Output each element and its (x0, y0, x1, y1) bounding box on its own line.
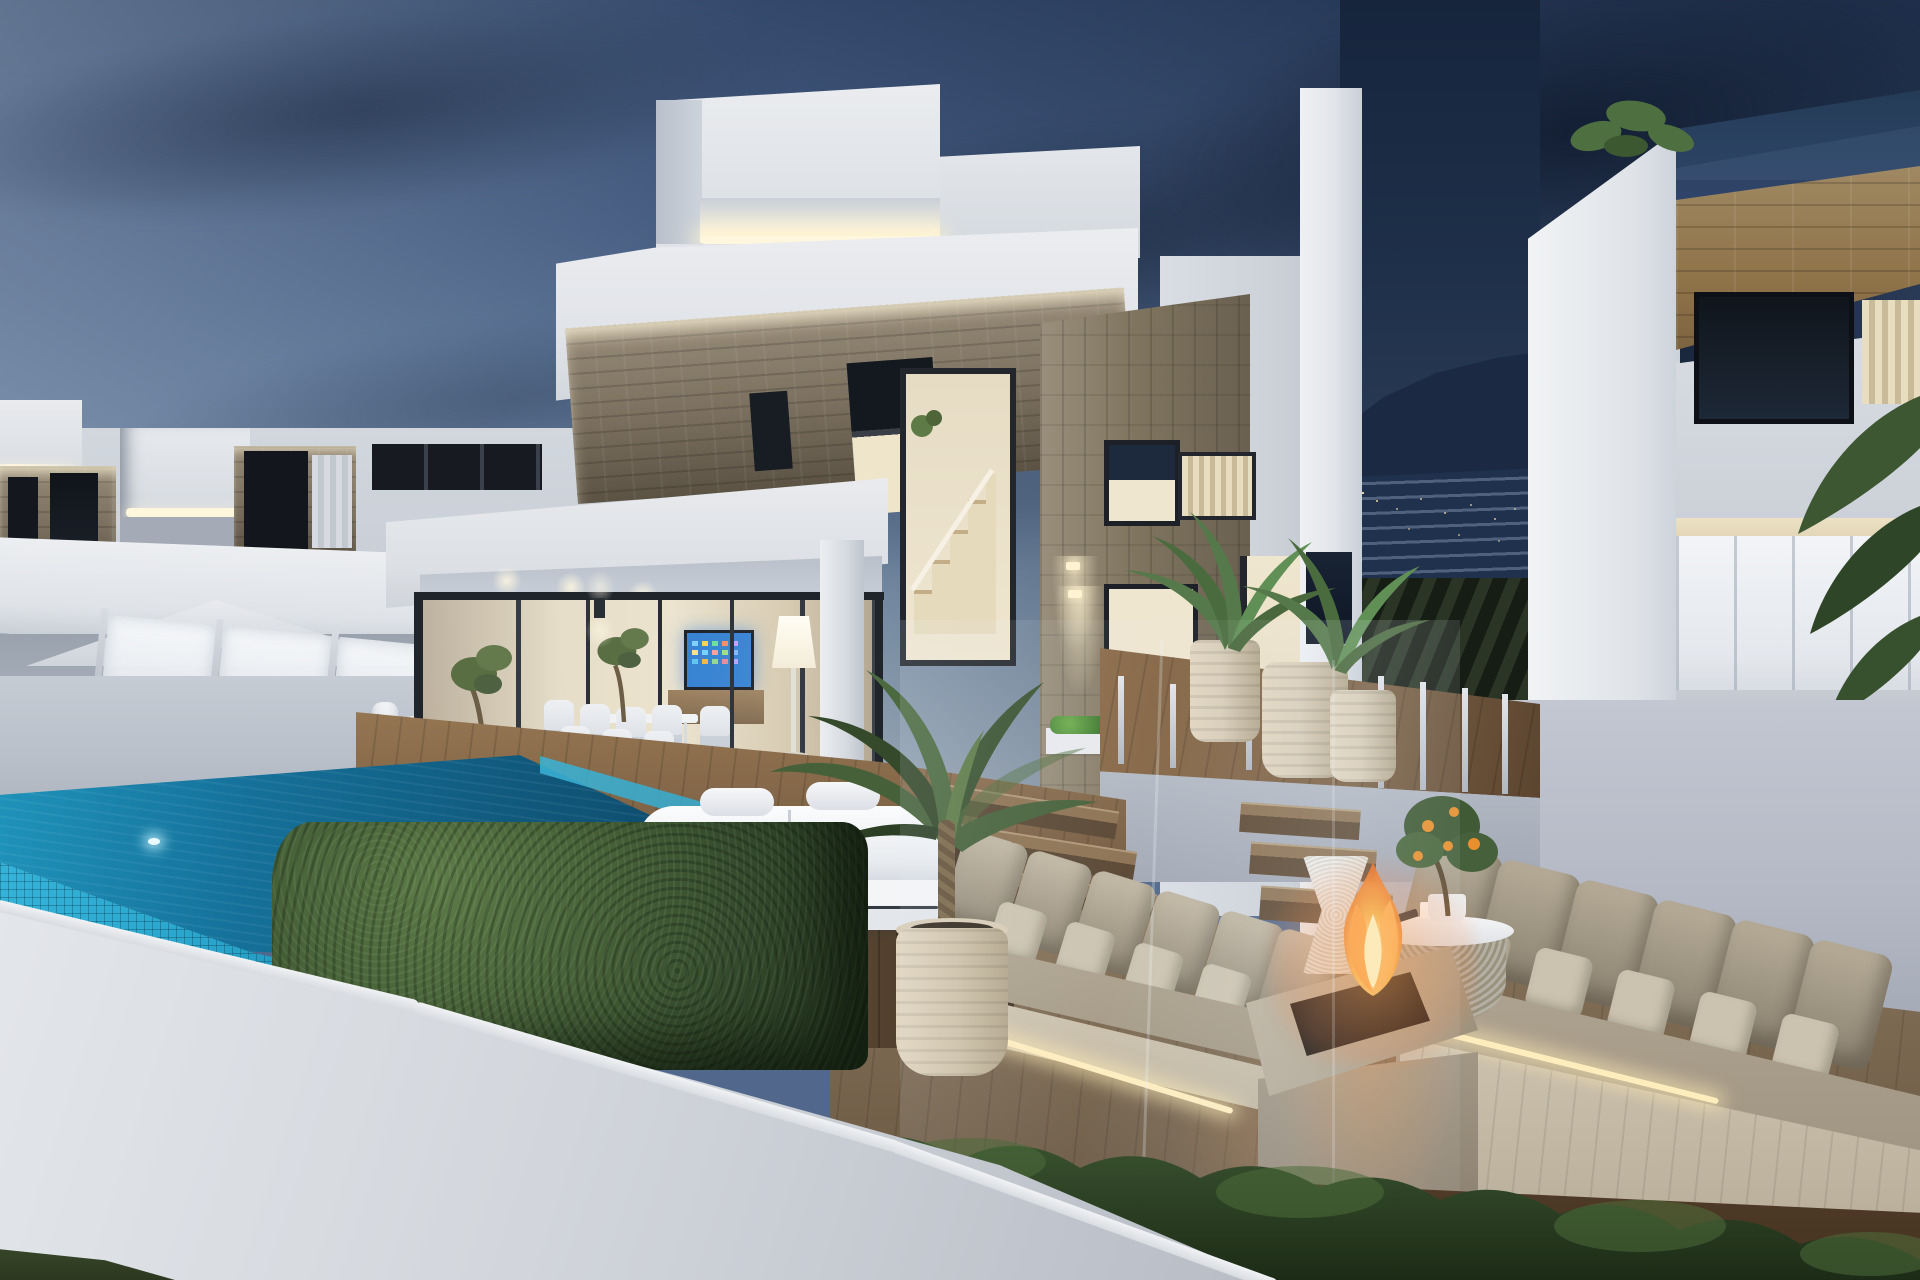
rooftop-side-face (656, 100, 702, 246)
clerestory-windows (372, 444, 542, 490)
left-villa-roof-box (0, 400, 82, 474)
dark-window (244, 451, 308, 550)
left-villa-roof-box (120, 428, 250, 518)
curtain-window (312, 455, 352, 548)
dark-window (749, 391, 793, 472)
rooftop-shrub (1556, 76, 1706, 176)
monstera-leaves (1782, 366, 1920, 726)
roof-led-strip (126, 508, 242, 517)
sconce-downlight (585, 614, 615, 648)
underwater-pool-light (148, 838, 160, 845)
wall-sconce (594, 598, 605, 618)
dining-chair (700, 706, 730, 750)
villa-dusk-rendering (0, 0, 1920, 1280)
